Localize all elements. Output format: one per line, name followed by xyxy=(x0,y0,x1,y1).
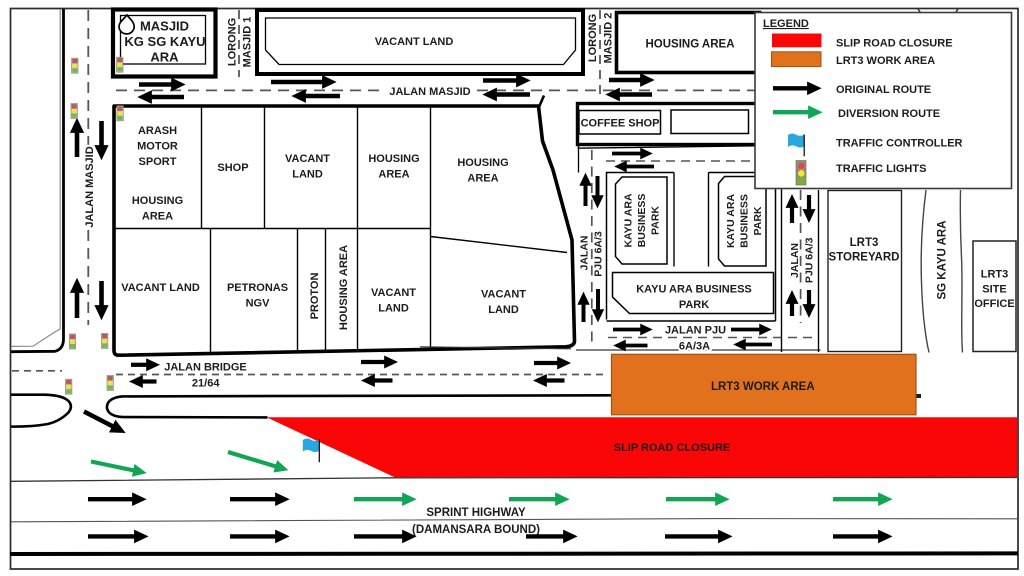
svg-text:SLIP ROAD CLOSURE: SLIP ROAD CLOSURE xyxy=(836,38,953,50)
svg-text:LAND: LAND xyxy=(378,303,409,315)
svg-text:SLIP ROAD CLOSURE: SLIP ROAD CLOSURE xyxy=(614,442,731,454)
svg-text:MASJID 1: MASJID 1 xyxy=(242,17,254,68)
svg-text:HOUSING: HOUSING xyxy=(457,157,508,169)
svg-text:MASJID: MASJID xyxy=(140,19,189,34)
svg-text:PARK: PARK xyxy=(679,299,709,311)
svg-text:PARK: PARK xyxy=(650,206,662,235)
svg-text:PJU 6A/3: PJU 6A/3 xyxy=(593,231,605,277)
svg-text:HOUSING AREA: HOUSING AREA xyxy=(338,245,350,330)
svg-text:KAYU ARA: KAYU ARA xyxy=(725,194,737,248)
svg-text:BUSINESS: BUSINESS xyxy=(739,194,751,248)
svg-text:JALAN MASJID: JALAN MASJID xyxy=(84,146,96,227)
svg-text:JALAN: JALAN xyxy=(789,243,801,278)
svg-text:SITE: SITE xyxy=(982,283,1006,295)
svg-text:SPRINT HIGHWAY: SPRINT HIGHWAY xyxy=(426,507,526,519)
svg-text:SPORT: SPORT xyxy=(139,156,177,168)
svg-text:STOREYARD: STOREYARD xyxy=(829,252,900,264)
svg-text:JALAN MASJID: JALAN MASJID xyxy=(389,86,470,98)
svg-text:COFFEE SHOP: COFFEE SHOP xyxy=(581,118,660,130)
svg-text:HOUSING: HOUSING xyxy=(368,153,419,165)
svg-text:JALAN BRIDGE: JALAN BRIDGE xyxy=(164,362,247,374)
svg-text:HOUSING: HOUSING xyxy=(132,195,183,207)
svg-text:LRT3 WORK AREA: LRT3 WORK AREA xyxy=(711,381,815,393)
svg-text:LRT3 WORK AREA: LRT3 WORK AREA xyxy=(836,55,935,67)
svg-text:DIVERSION ROUTE: DIVERSION ROUTE xyxy=(838,108,940,120)
svg-text:VACANT: VACANT xyxy=(371,287,416,299)
svg-text:(DAMANSARA BOUND): (DAMANSARA BOUND) xyxy=(412,524,540,536)
svg-text:ARA: ARA xyxy=(150,50,179,65)
svg-text:AREA: AREA xyxy=(378,169,409,181)
svg-text:VACANT LAND: VACANT LAND xyxy=(121,282,200,294)
svg-text:AREA: AREA xyxy=(467,173,498,185)
svg-text:JALAN: JALAN xyxy=(579,235,591,270)
svg-text:LRT3: LRT3 xyxy=(981,269,1009,281)
svg-text:SHOP: SHOP xyxy=(217,162,248,174)
svg-text:TRAFFIC CONTROLLER: TRAFFIC CONTROLLER xyxy=(836,138,963,150)
svg-text:PJU 6A/3: PJU 6A/3 xyxy=(803,237,815,283)
svg-text:OFFICE: OFFICE xyxy=(974,298,1014,310)
svg-text:AREA: AREA xyxy=(142,211,173,223)
svg-text:TRAFFIC LIGHTS: TRAFFIC LIGHTS xyxy=(836,163,926,175)
svg-text:BUSINESS: BUSINESS xyxy=(636,194,648,248)
svg-text:LORONG: LORONG xyxy=(587,14,599,62)
svg-text:MOTOR: MOTOR xyxy=(137,141,178,153)
svg-text:SG KAYU ARA: SG KAYU ARA xyxy=(937,220,949,299)
svg-text:NGV: NGV xyxy=(246,298,271,310)
svg-text:PROTON: PROTON xyxy=(309,273,321,320)
svg-text:VACANT LAND: VACANT LAND xyxy=(375,36,454,48)
svg-text:6A/3A: 6A/3A xyxy=(679,341,710,353)
svg-text:PARK: PARK xyxy=(752,206,764,235)
svg-text:VACANT: VACANT xyxy=(481,289,526,301)
svg-text:KG SG KAYU: KG SG KAYU xyxy=(124,34,205,49)
svg-text:LAND: LAND xyxy=(488,304,519,316)
svg-text:VACANT: VACANT xyxy=(285,153,330,165)
svg-text:ARASH: ARASH xyxy=(138,125,177,137)
svg-text:KAYU ARA BUSINESS: KAYU ARA BUSINESS xyxy=(636,284,752,296)
svg-text:MASJID 2: MASJID 2 xyxy=(603,13,615,64)
svg-text:LAND: LAND xyxy=(292,169,323,181)
svg-text:21/64: 21/64 xyxy=(192,377,220,389)
svg-text:LORONG: LORONG xyxy=(227,18,239,66)
svg-text:JALAN PJU: JALAN PJU xyxy=(665,325,726,337)
svg-text:LRT3: LRT3 xyxy=(850,237,879,249)
svg-text:ORIGINAL ROUTE: ORIGINAL ROUTE xyxy=(836,84,931,96)
svg-text:LEGEND: LEGEND xyxy=(763,18,809,30)
svg-text:KAYU ARA: KAYU ARA xyxy=(623,193,635,247)
svg-text:PETRONAS: PETRONAS xyxy=(227,282,288,294)
svg-text:HOUSING AREA: HOUSING AREA xyxy=(645,39,734,51)
